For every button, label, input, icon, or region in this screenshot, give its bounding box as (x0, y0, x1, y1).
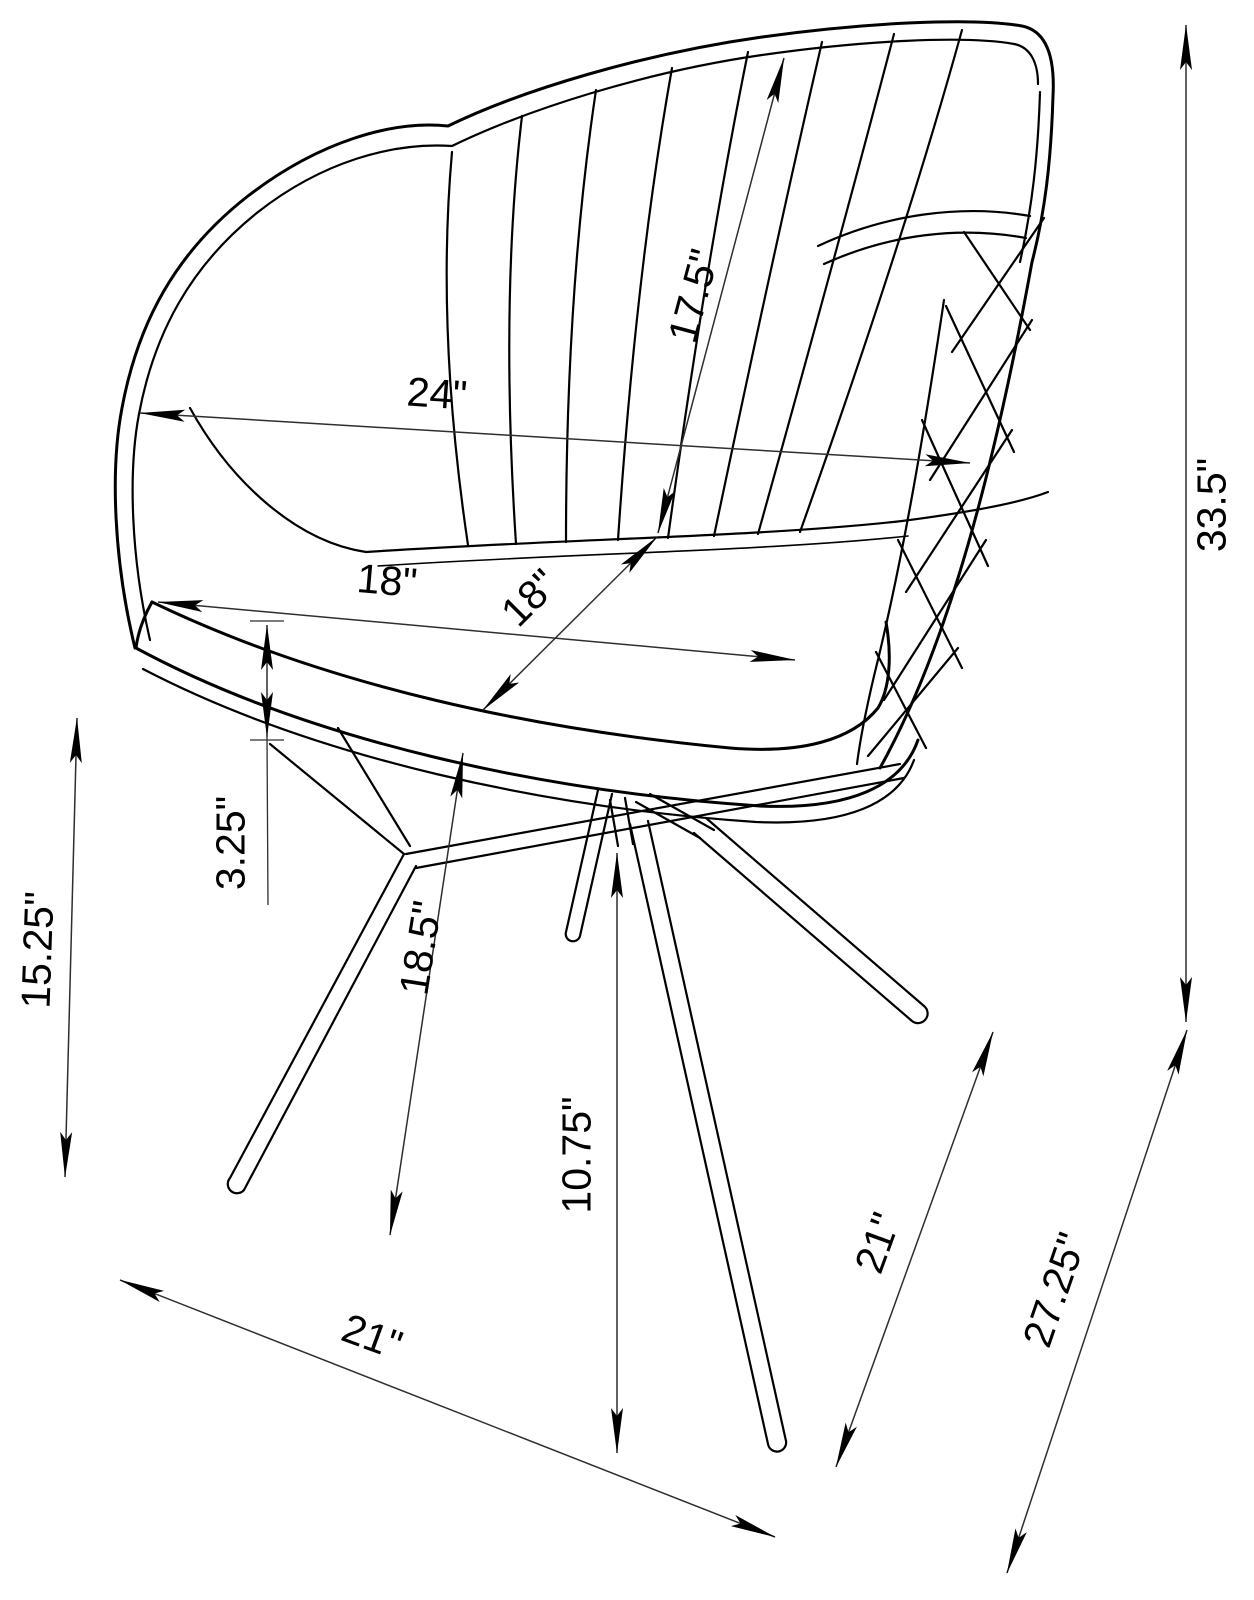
dim-ext-seat-thickness (267, 737, 268, 905)
base-legs (228, 728, 928, 1452)
dim-label-base-height: 10.75" (557, 1096, 598, 1213)
dim-line-back-width (140, 413, 970, 463)
dim-line-leg-span-front (120, 1280, 775, 1537)
dim-label-seat-width: 18" (355, 558, 419, 604)
dim-label-overall-height: 33.5" (1192, 458, 1233, 552)
lattice-pattern (857, 218, 1044, 764)
dim-line-seat-width (158, 602, 795, 660)
dim-line-seat-height (65, 718, 77, 1177)
dim-line-seat-depth (483, 537, 657, 710)
dimension-diagram: 17.5" 24" 18" 18" 33.5" 3.25" 15.25" 18.… (0, 0, 1254, 1600)
chair-line-art (0, 0, 1254, 1600)
dim-label-seat-height: 15.25" (15, 891, 60, 1010)
dim-label-back-width: 24" (406, 371, 469, 416)
dim-label-seat-thickness: 3.25" (211, 796, 252, 890)
